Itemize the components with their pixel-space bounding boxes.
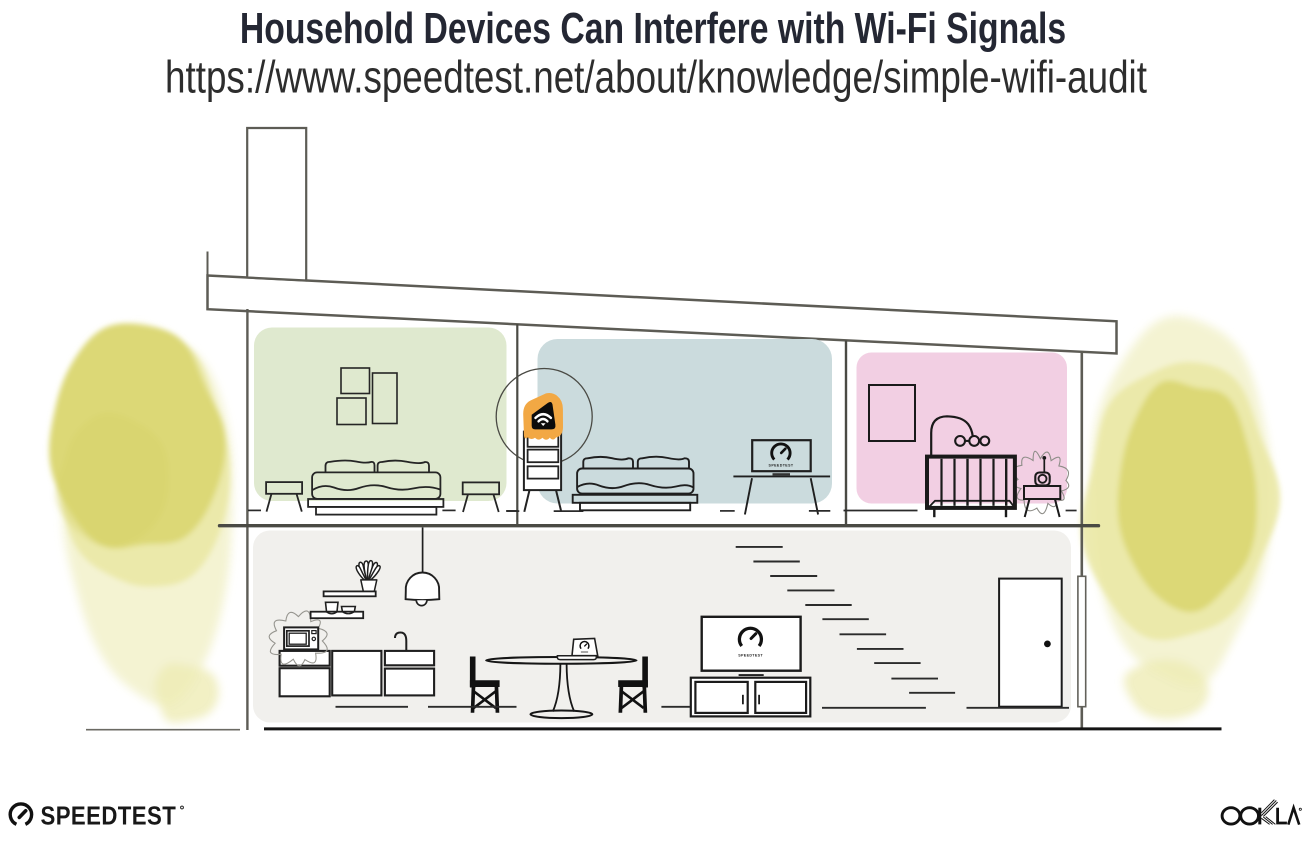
svg-text:SPEEDTEST: SPEEDTEST: [769, 464, 794, 468]
svg-text:https://www.speedtest.net/abou: https://www.speedtest.net/about/knowledg…: [165, 52, 1147, 103]
svg-text:SPEEDTEST: SPEEDTEST: [738, 653, 763, 657]
svg-text:Household Devices Can Interfer: Household Devices Can Interfere with Wi-…: [240, 5, 1066, 53]
svg-text:SPEEDTEST: SPEEDTEST: [41, 802, 177, 831]
